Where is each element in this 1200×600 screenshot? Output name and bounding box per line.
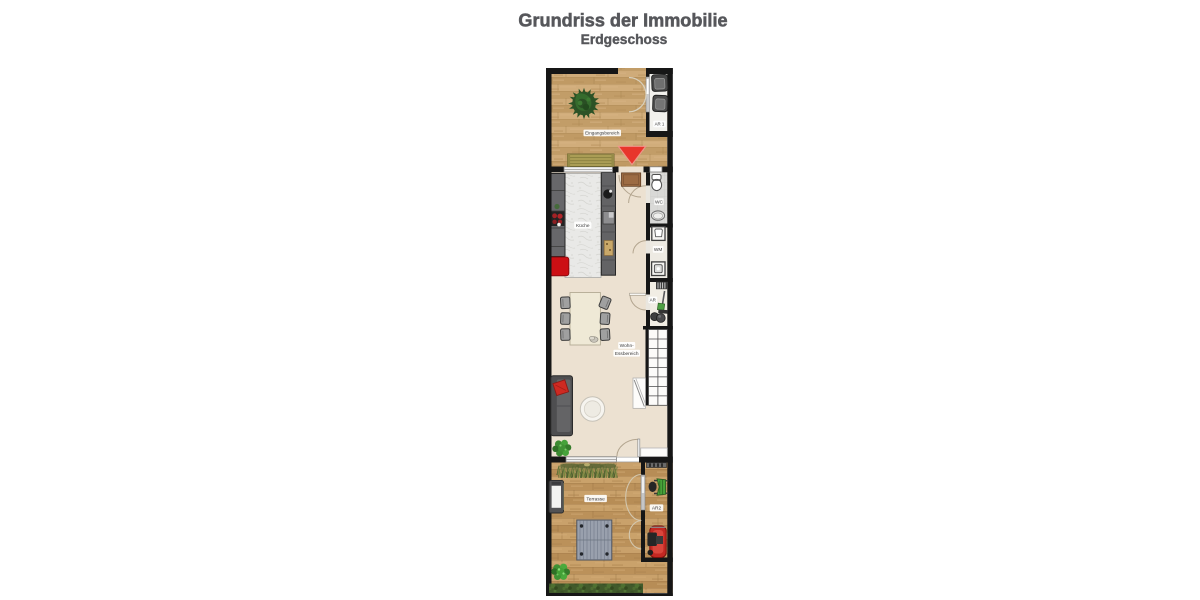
svg-text:AR 1: AR 1 [655,122,665,127]
svg-text:Eingangsbereich: Eingangsbereich [585,131,620,136]
svg-text:AR2: AR2 [652,506,662,512]
svg-text:Essbereich: Essbereich [615,351,639,357]
svg-text:WM: WM [654,247,663,253]
svg-text:Erdgeschoss: Erdgeschoss [581,32,668,47]
svg-text:AR: AR [650,298,657,303]
svg-text:Wohn-: Wohn- [620,343,634,349]
svg-text:Küche: Küche [576,223,590,229]
svg-text:WC: WC [655,200,664,206]
svg-text:Grundriss der Immobilie: Grundriss der Immobilie [518,11,727,31]
svg-text:Terrasse: Terrasse [586,496,605,502]
